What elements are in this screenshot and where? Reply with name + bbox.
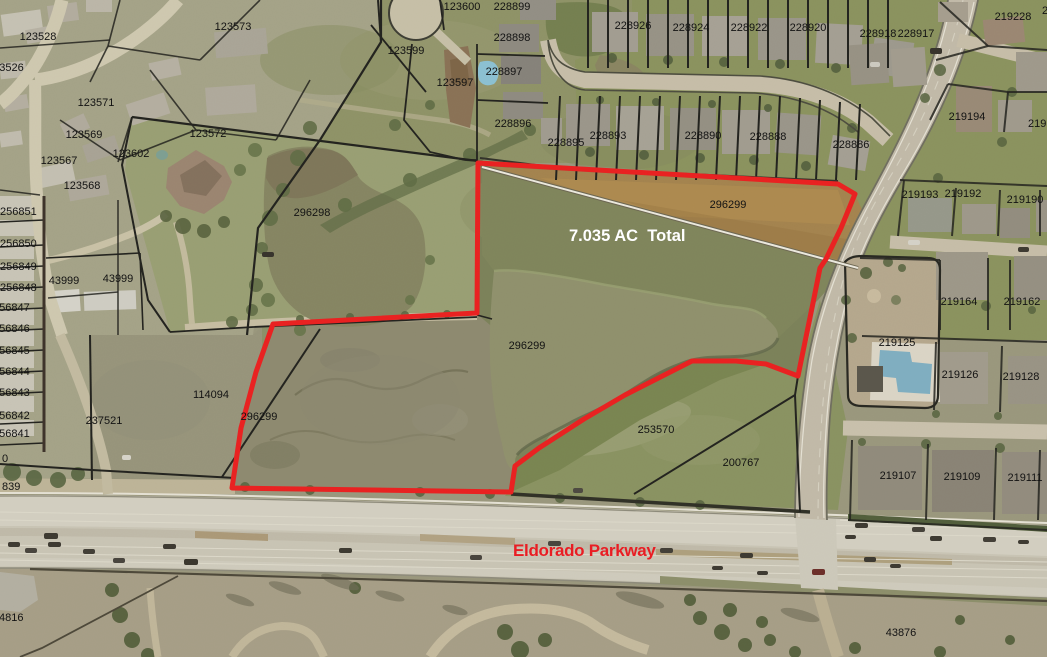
svg-text:219164: 219164: [941, 296, 978, 308]
svg-text:200767: 200767: [723, 457, 760, 469]
svg-text:43999: 43999: [103, 273, 134, 285]
svg-text:219190: 219190: [1007, 194, 1044, 206]
svg-text:228888: 228888: [750, 131, 787, 143]
svg-text:256850: 256850: [0, 238, 37, 250]
svg-text:256847: 256847: [0, 302, 30, 314]
svg-text:228890: 228890: [685, 130, 722, 142]
svg-text:228898: 228898: [494, 32, 531, 44]
svg-text:219109: 219109: [944, 471, 981, 483]
svg-text:219128: 219128: [1003, 371, 1040, 383]
svg-text:219111: 219111: [1007, 472, 1042, 484]
svg-text:219126: 219126: [942, 369, 979, 381]
svg-text:296299: 296299: [241, 411, 278, 423]
svg-text:219194: 219194: [949, 111, 986, 123]
svg-text:237521: 237521: [86, 415, 123, 427]
svg-text:123526: 123526: [0, 62, 24, 74]
svg-text:123568: 123568: [64, 180, 101, 192]
svg-text:219193: 219193: [902, 189, 939, 201]
svg-text:296299: 296299: [509, 340, 546, 352]
svg-text:123572: 123572: [190, 128, 227, 140]
svg-text:228899: 228899: [494, 1, 531, 13]
svg-text:123567: 123567: [41, 155, 78, 167]
svg-text:256842: 256842: [0, 410, 30, 422]
svg-text:256844: 256844: [0, 366, 30, 378]
svg-text:219162: 219162: [1004, 296, 1041, 308]
svg-text:228886: 228886: [833, 139, 870, 151]
svg-text:0: 0: [2, 453, 8, 465]
svg-text:228895: 228895: [548, 137, 585, 149]
svg-text:219228: 219228: [995, 11, 1032, 23]
svg-text:228918: 228918: [860, 28, 897, 40]
svg-text:43876: 43876: [886, 627, 917, 639]
svg-text:123571: 123571: [78, 97, 115, 109]
svg-text:228896: 228896: [495, 118, 532, 130]
svg-text:114094: 114094: [193, 389, 229, 401]
svg-text:219107: 219107: [880, 470, 917, 482]
svg-text:256845: 256845: [0, 345, 30, 357]
svg-text:228897: 228897: [486, 66, 523, 78]
svg-text:219226: 219226: [1042, 5, 1047, 17]
svg-text:123597: 123597: [437, 77, 474, 89]
svg-text:123573: 123573: [215, 21, 252, 33]
svg-text:228920: 228920: [790, 22, 827, 34]
svg-text:7.035 AC Total: 7.035 AC Total: [569, 227, 685, 245]
svg-text:228917: 228917: [898, 28, 935, 40]
svg-text:256843: 256843: [0, 387, 30, 399]
svg-text:296299: 296299: [710, 199, 747, 211]
svg-text:123600: 123600: [444, 1, 481, 13]
svg-text:228922: 228922: [731, 22, 768, 34]
svg-text:296298: 296298: [294, 207, 331, 219]
svg-text:123602: 123602: [113, 148, 150, 160]
svg-text:256848: 256848: [0, 282, 37, 294]
svg-text:219191: 219191: [1028, 118, 1047, 130]
svg-text:839: 839: [2, 481, 20, 493]
svg-text:256841: 256841: [0, 428, 30, 440]
svg-text:4816: 4816: [0, 612, 23, 624]
svg-text:123528: 123528: [20, 31, 57, 43]
svg-text:219125: 219125: [879, 337, 916, 349]
svg-text:219192: 219192: [945, 188, 982, 200]
svg-text:Eldorado Parkway: Eldorado Parkway: [513, 541, 656, 560]
svg-text:256849: 256849: [0, 261, 37, 273]
svg-text:123569: 123569: [66, 129, 103, 141]
svg-text:123599: 123599: [388, 45, 425, 57]
svg-text:253570: 253570: [638, 424, 675, 436]
svg-text:256846: 256846: [0, 323, 30, 335]
svg-text:43999: 43999: [49, 275, 80, 287]
svg-text:228893: 228893: [590, 130, 627, 142]
svg-text:228926: 228926: [615, 20, 652, 32]
svg-text:228924: 228924: [673, 22, 710, 34]
svg-text:256851: 256851: [0, 206, 37, 218]
